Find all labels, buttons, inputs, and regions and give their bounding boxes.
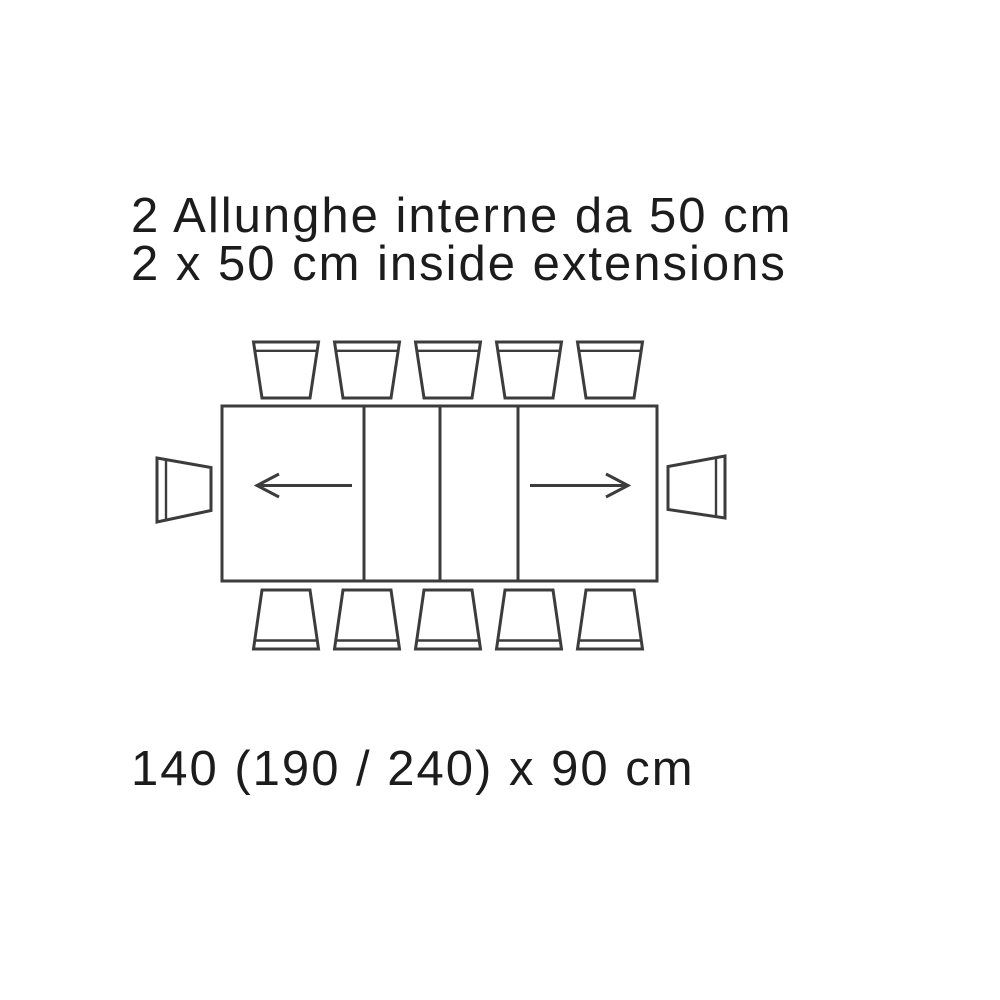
chair-bottom-3 [416,590,481,649]
product-dimension-sheet: 2 Allunghe interne da 50 cm 2 x 50 cm in… [0,0,1000,1000]
table-plan-diagram [0,0,1000,1000]
extend-left-arrow [257,474,352,497]
chair-top-4 [497,342,562,398]
chair-bottom-4 [497,590,562,649]
chair-top-3 [416,342,481,398]
dimensions-label: 140 (190 / 240) x 90 cm [131,745,695,793]
extend-right-arrow [530,474,628,497]
chair-bottom-5 [578,590,643,649]
chair-top-2 [335,342,400,398]
chair-top-5 [578,342,643,398]
chair-top-1 [254,342,319,398]
table-outline [222,406,657,581]
chair-left [157,458,211,522]
chair-bottom-1 [254,590,319,649]
chair-right [668,456,725,518]
chair-bottom-2 [335,590,400,649]
